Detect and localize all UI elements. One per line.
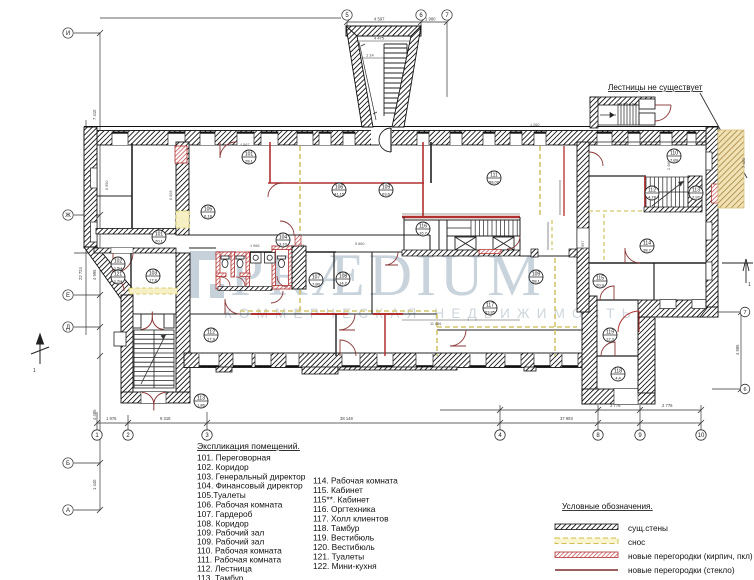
svg-text:И: И — [66, 31, 70, 37]
svg-text:9 318: 9 318 — [160, 416, 171, 421]
svg-text:102: 102 — [114, 259, 123, 265]
svg-text:7,89: 7,89 — [670, 158, 679, 163]
svg-text:3,10: 3,10 — [279, 242, 288, 247]
svg-text:сущ.стены: сущ.стены — [628, 524, 668, 533]
svg-text:11 886: 11 886 — [430, 322, 441, 326]
svg-text:12,3: 12,3 — [606, 337, 615, 342]
svg-text:20,9: 20,9 — [596, 283, 605, 288]
svg-text:58,02: 58,02 — [489, 180, 500, 185]
svg-text:112: 112 — [648, 188, 656, 194]
svg-text:1: 1 — [748, 282, 751, 288]
svg-text:116: 116 — [419, 224, 427, 230]
svg-text:113: 113 — [692, 188, 700, 194]
svg-text:118. Тамбур: 118. Тамбур — [313, 523, 360, 533]
svg-text:Экспликация помещений.: Экспликация помещений. — [197, 441, 300, 451]
svg-text:7,80: 7,80 — [312, 282, 321, 287]
svg-text:115. Кабинет: 115. Кабинет — [313, 485, 363, 495]
svg-text:2 466: 2 466 — [667, 160, 671, 170]
svg-text:115: 115 — [596, 276, 604, 282]
svg-text:2,92: 2,92 — [692, 195, 701, 200]
svg-text:38,7: 38,7 — [643, 248, 652, 253]
svg-text:4,78: 4,78 — [648, 195, 657, 200]
svg-text:105: 105 — [204, 207, 213, 213]
svg-text:107: 107 — [312, 275, 321, 281]
svg-text:63,6: 63,6 — [382, 192, 391, 197]
svg-text:1 260: 1 260 — [530, 123, 540, 127]
svg-text:120. Вестибюль: 120. Вестибюль — [313, 542, 375, 552]
svg-text:17,8: 17,8 — [149, 278, 158, 283]
svg-text:28,1: 28,1 — [245, 159, 254, 164]
svg-text:115**. Кабинет: 115**. Кабинет — [313, 495, 370, 505]
svg-text:1 440: 1 440 — [92, 479, 97, 490]
svg-text:38 148: 38 148 — [340, 416, 353, 421]
svg-text:снос: снос — [628, 538, 645, 547]
svg-text:Лестницы не существует: Лестницы не существует — [608, 83, 703, 92]
svg-text:6: 6 — [743, 387, 746, 393]
svg-text:6 003: 6 003 — [169, 190, 173, 200]
svg-text:1: 1 — [33, 368, 36, 374]
svg-text:22 724: 22 724 — [78, 267, 83, 280]
svg-text:114. Рабочая комната: 114. Рабочая комната — [313, 476, 398, 486]
svg-text:101: 101 — [245, 152, 254, 158]
svg-text:103: 103 — [149, 271, 158, 277]
svg-text:108: 108 — [339, 274, 348, 280]
svg-text:104: 104 — [279, 235, 288, 241]
svg-text:4 995: 4 995 — [92, 269, 97, 280]
svg-text:63,85: 63,85 — [485, 310, 496, 315]
svg-text:109: 109 — [382, 185, 391, 191]
svg-text:101: 101 — [155, 232, 164, 238]
svg-text:Условные обозначения.: Условные обозначения. — [562, 502, 653, 511]
svg-text:14,2: 14,2 — [339, 281, 348, 286]
svg-text:41,15: 41,15 — [334, 192, 345, 197]
svg-text:7 410: 7 410 — [92, 109, 97, 120]
svg-text:58,1: 58,1 — [532, 279, 541, 284]
svg-text:1 976: 1 976 — [106, 416, 117, 421]
svg-text:121: 121 — [114, 272, 123, 278]
svg-text:37 993: 37 993 — [560, 416, 573, 421]
svg-text:2 776: 2 776 — [662, 403, 673, 408]
svg-text:Д: Д — [66, 325, 70, 331]
svg-text:121. Туалеты: 121. Туалеты — [313, 552, 364, 562]
svg-text:1,2м: 1,2м — [114, 279, 123, 284]
svg-text:113: 113 — [197, 396, 205, 402]
svg-text:4 475: 4 475 — [374, 36, 385, 41]
svg-text:2 066: 2 066 — [295, 244, 305, 248]
svg-text:16,7: 16,7 — [419, 231, 428, 236]
svg-text:117: 117 — [486, 303, 494, 309]
svg-text:20,1: 20,1 — [155, 239, 164, 244]
svg-text:109: 109 — [532, 272, 541, 278]
svg-text:5 660: 5 660 — [355, 242, 365, 246]
svg-text:1,86: 1,86 — [197, 403, 206, 408]
svg-text:3 997: 3 997 — [581, 240, 585, 250]
svg-text:новые перегородки (кирпич, пкл: новые перегородки (кирпич, пкл) — [628, 552, 753, 561]
svg-text:6,18: 6,18 — [204, 214, 213, 219]
svg-text:116. Оргтехника: 116. Оргтехника — [313, 504, 376, 514]
svg-text:114: 114 — [643, 241, 651, 247]
svg-text:110: 110 — [670, 151, 678, 157]
svg-text:Е: Е — [66, 293, 70, 299]
svg-text:1 966: 1 966 — [250, 244, 260, 248]
svg-text:122. Мини-кухня: 122. Мини-кухня — [313, 561, 377, 571]
svg-text:17,9: 17,9 — [207, 337, 216, 342]
svg-text:4 597: 4 597 — [240, 143, 250, 147]
svg-text:113. Тамбур: 113. Тамбур — [197, 573, 244, 580]
svg-text:4 597: 4 597 — [374, 17, 385, 22]
svg-text:111: 111 — [490, 173, 498, 179]
svg-text:7 480: 7 480 — [741, 157, 746, 168]
svg-text:10: 10 — [698, 433, 705, 439]
svg-text:6 950: 6 950 — [105, 180, 109, 190]
svg-text:112: 112 — [207, 330, 215, 336]
svg-text:Б: Б — [66, 461, 70, 467]
svg-text:4 485: 4 485 — [92, 409, 97, 420]
svg-text:новые перегородки (стекло): новые перегородки (стекло) — [628, 566, 735, 575]
svg-text:А: А — [66, 508, 70, 514]
svg-text:1 980: 1 980 — [425, 17, 436, 22]
svg-text:4 985: 4 985 — [735, 344, 740, 355]
svg-text:7: 7 — [743, 310, 746, 316]
svg-text:4,4: 4,4 — [615, 376, 621, 381]
svg-text:119: 119 — [606, 330, 614, 336]
svg-text:106: 106 — [335, 185, 344, 191]
svg-text:118: 118 — [614, 369, 622, 375]
svg-text:117. Холл клиентов: 117. Холл клиентов — [313, 514, 389, 524]
svg-text:1 14: 1 14 — [366, 53, 375, 58]
svg-text:119. Вестибюль: 119. Вестибюль — [313, 533, 375, 543]
svg-text:Ж: Ж — [65, 213, 71, 219]
